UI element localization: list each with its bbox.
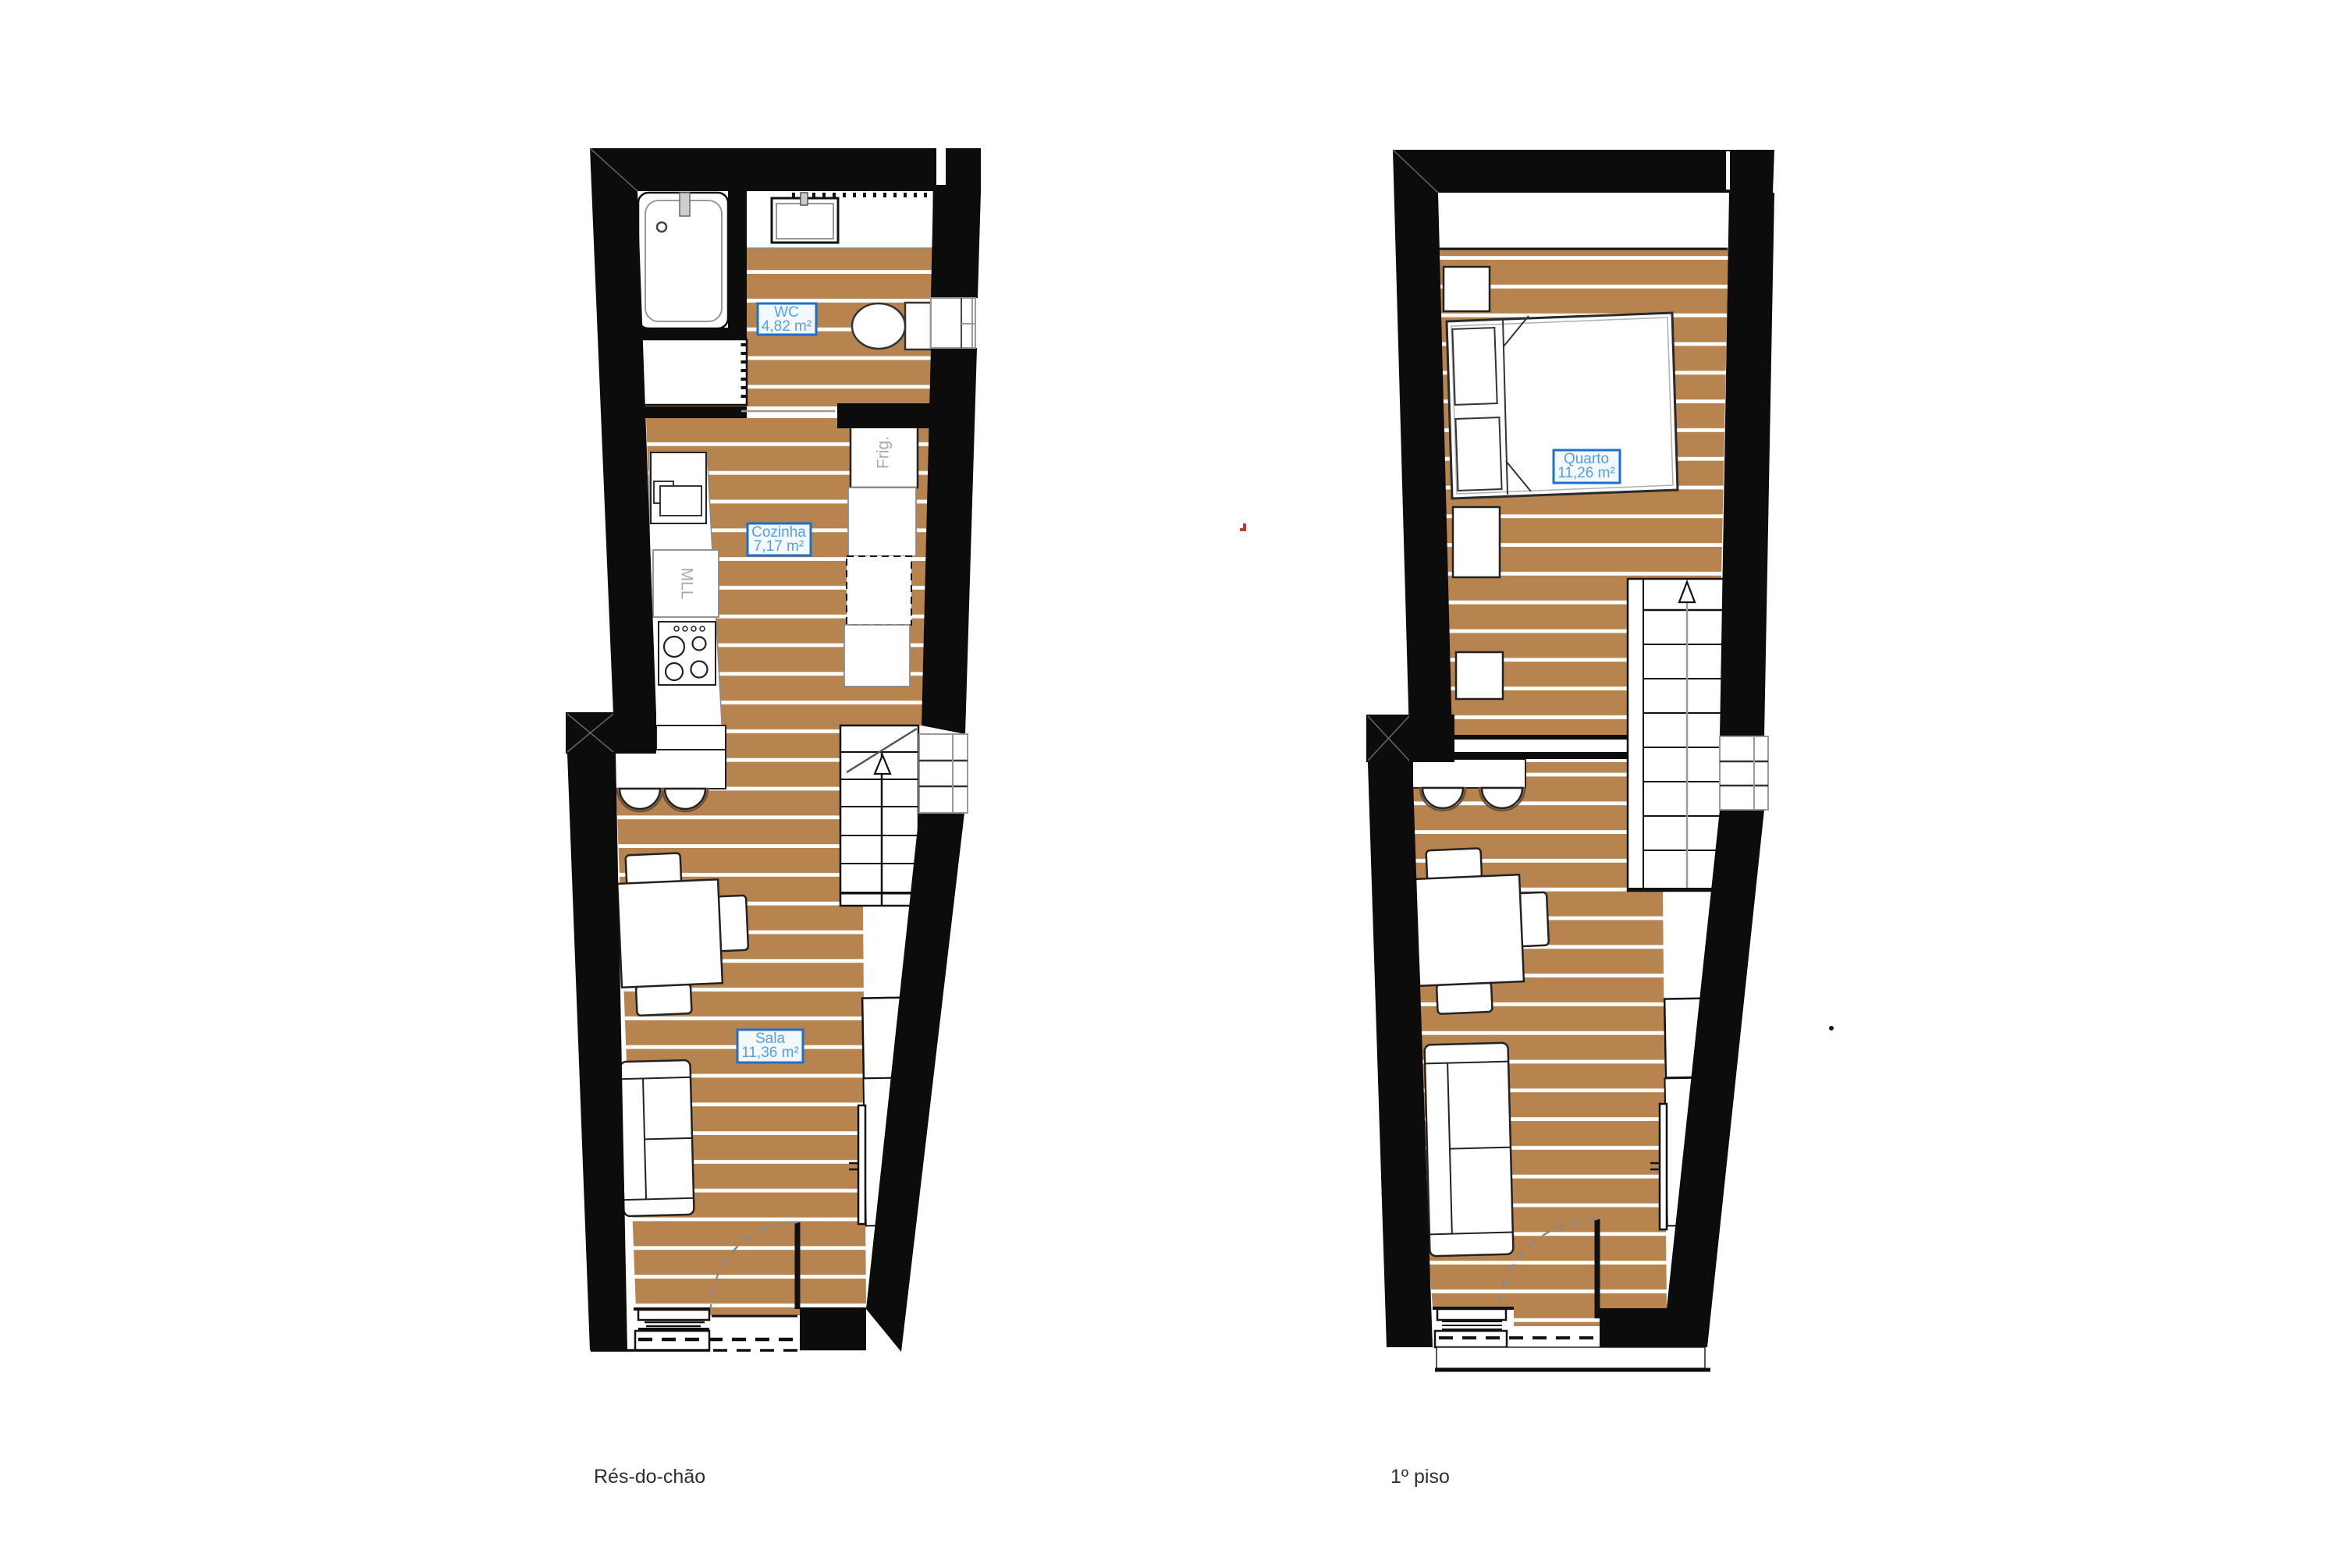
svg-text:11,36 m²: 11,36 m²	[741, 1045, 799, 1061]
svg-text:Rés-do-chão: Rés-do-chão	[594, 1466, 705, 1488]
svg-text:Frig.: Frig.	[875, 436, 893, 469]
svg-text:1º piso: 1º piso	[1390, 1466, 1450, 1488]
svg-text:11,26 m²: 11,26 m²	[1557, 465, 1615, 481]
svg-text:MLL: MLL	[677, 568, 695, 600]
svg-text:7,17 m²: 7,17 m²	[754, 538, 804, 555]
svg-text:4,82 m²: 4,82 m²	[762, 318, 812, 335]
